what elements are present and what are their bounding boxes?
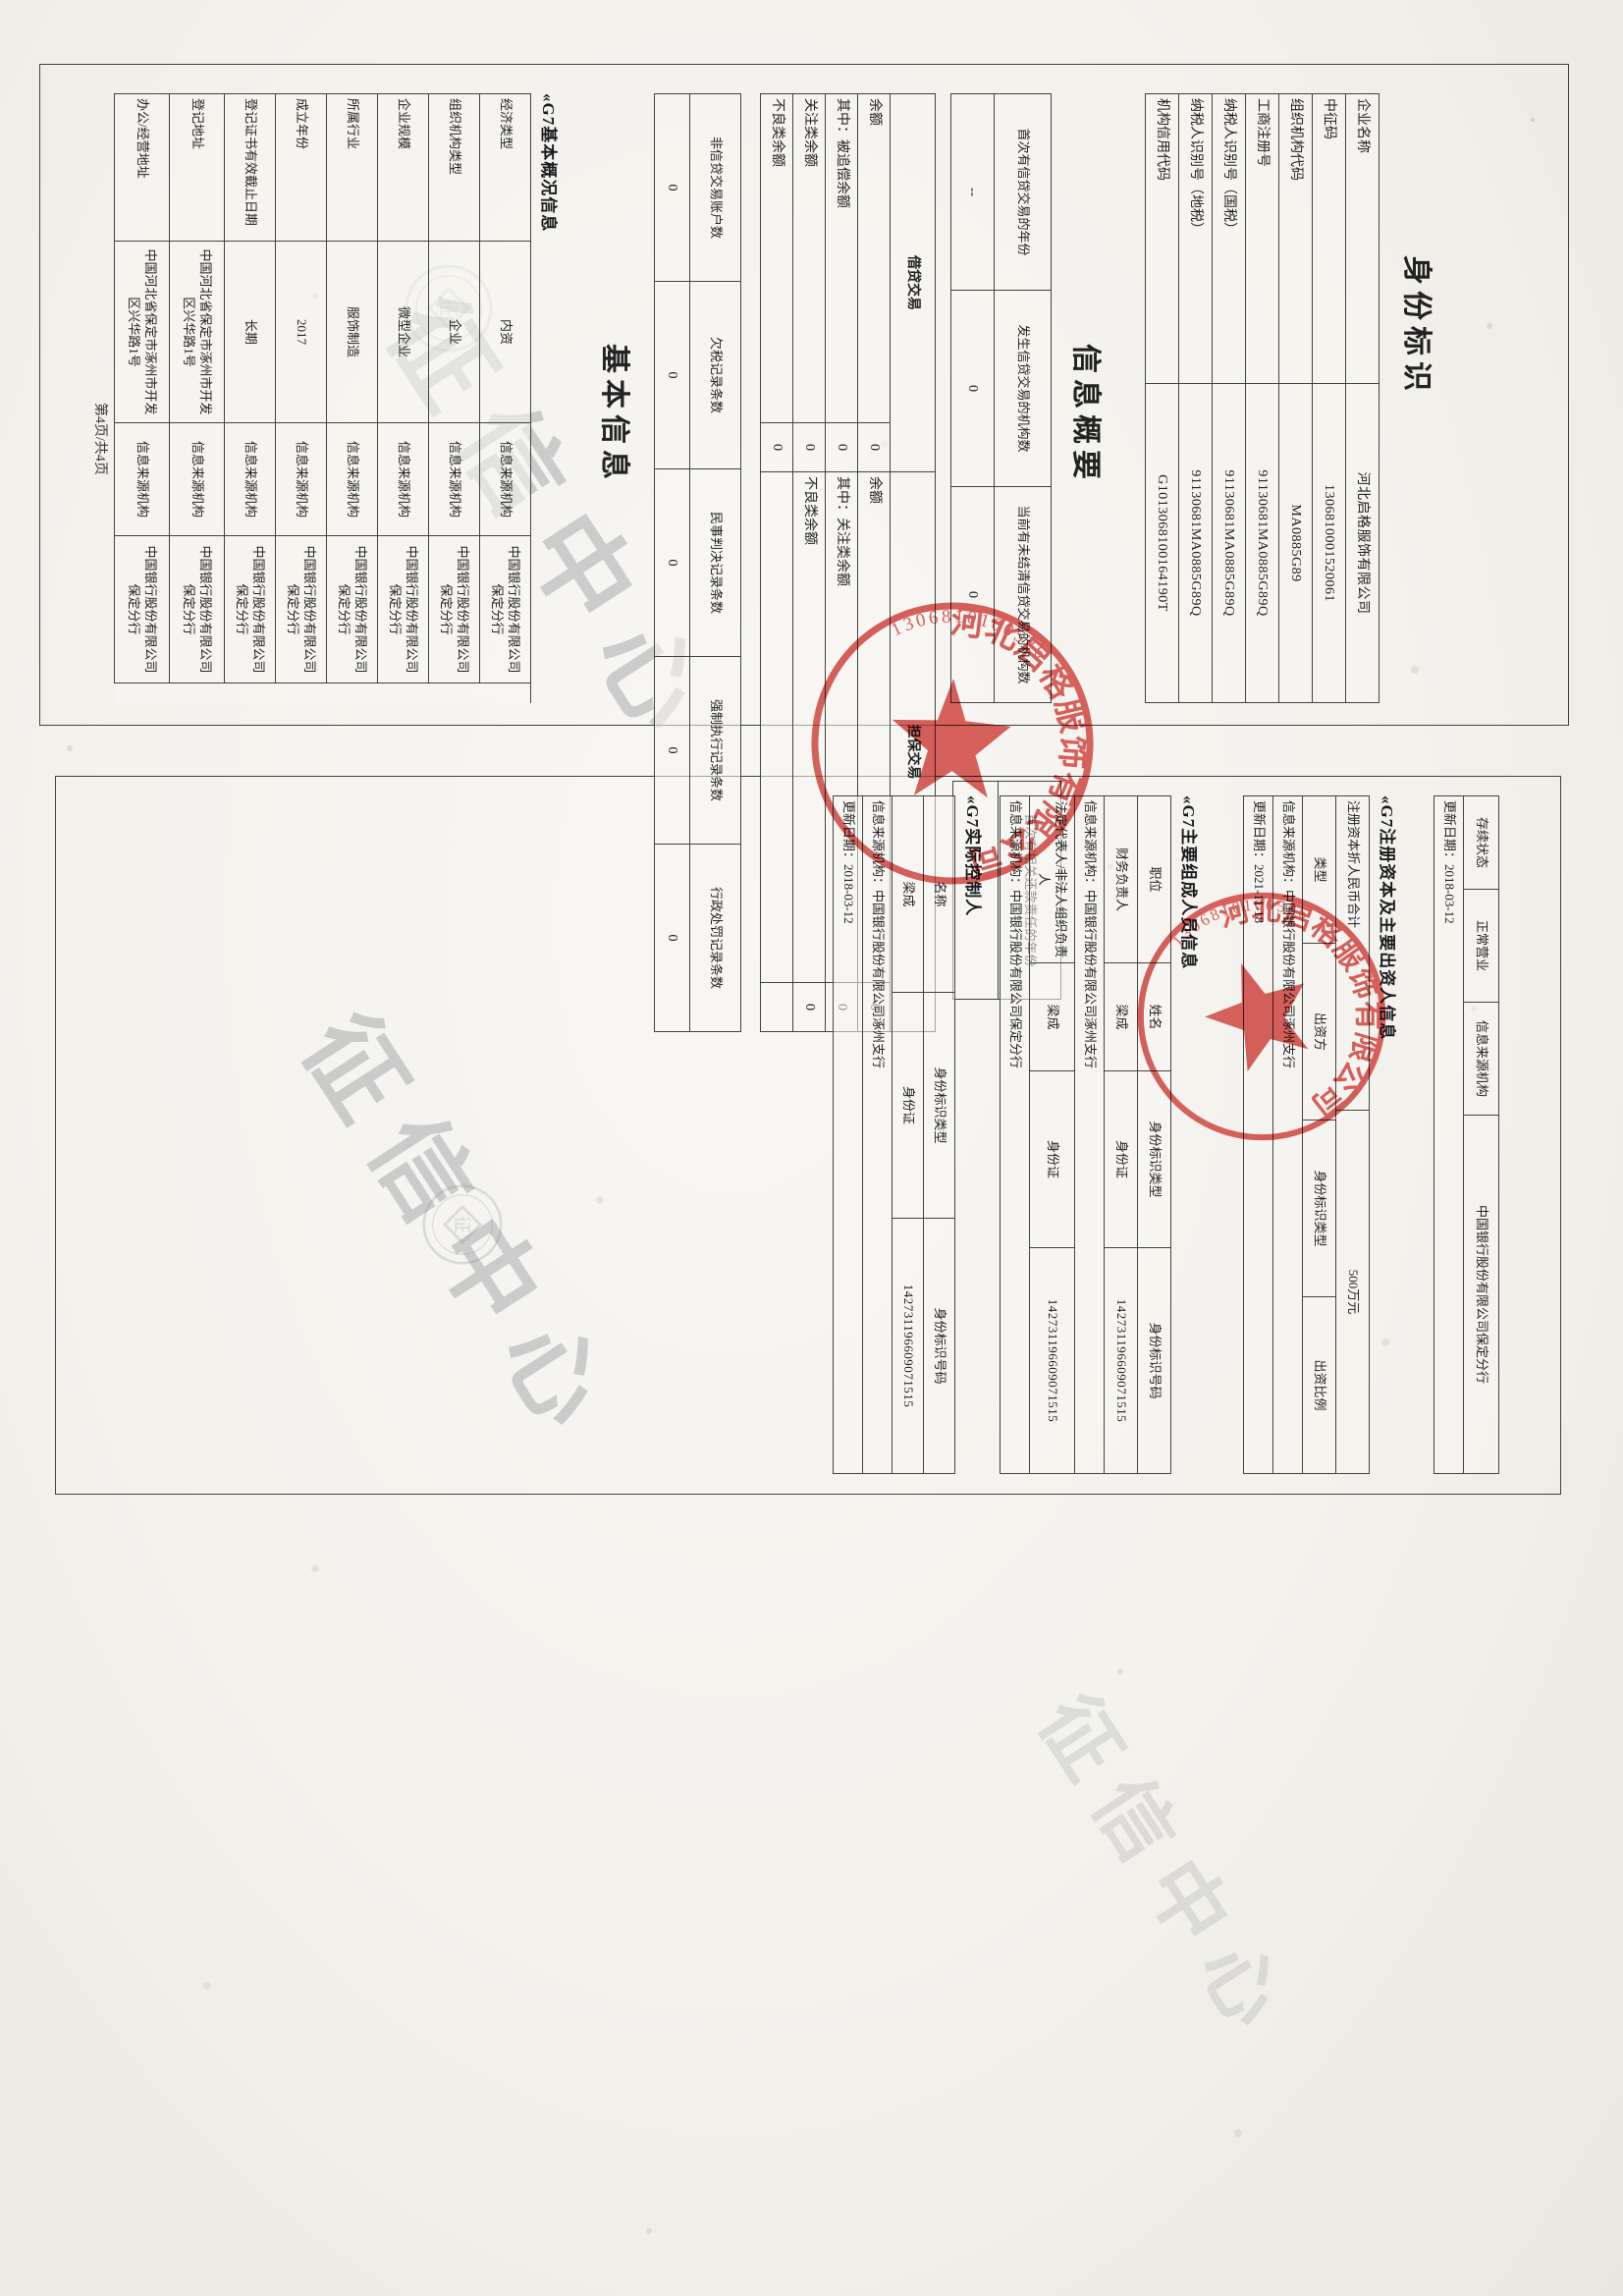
section-title-identity: 身份标识 bbox=[1398, 255, 1441, 397]
basic-source-org: 中国银行股份有限公司保定分行 bbox=[326, 536, 377, 683]
loan-group-header: 借贷交易 bbox=[890, 94, 935, 472]
basic-source-label: 信息来源机构 bbox=[428, 423, 479, 536]
basic-label: 企业规模 bbox=[377, 94, 428, 242]
noncredit-header: 欠税记录条数 bbox=[689, 282, 740, 469]
status-table: 存续状态 正常营业 信息来源机构 中国银行股份有限公司保定分行 更新日期：201… bbox=[1434, 795, 1499, 1474]
section-title-summary: 信息概要 bbox=[1067, 344, 1110, 485]
basic-value: 企业 bbox=[428, 242, 479, 423]
basic-source-label: 信息来源机构 bbox=[169, 423, 224, 536]
noncredit-header: 非信贷交易账户数 bbox=[689, 94, 740, 282]
basic-value: 服饰制造 bbox=[326, 242, 377, 423]
noncredit-table: 非信贷交易账户数 欠税记录条数 民事判决记录条数 强制执行记录条数 行政处罚记录… bbox=[654, 93, 741, 1032]
member-header: 身份标识号码 bbox=[1137, 1248, 1170, 1474]
id-value: 91130681MA0885G89Q bbox=[1178, 384, 1212, 703]
watermark-text: 征信中心 bbox=[1017, 1669, 1326, 2061]
controller-id-type: 身份证 bbox=[892, 993, 923, 1219]
subsection-basic-overview: «G7基本概况信息 bbox=[538, 93, 563, 232]
basic-source-org: 中国银行股份有限公司保定分行 bbox=[224, 536, 275, 683]
balance-label: 不良类余额 bbox=[760, 94, 792, 423]
member-id-no: 142731196609071515 bbox=[1104, 1248, 1137, 1474]
basic-label: 成立年份 bbox=[275, 94, 326, 242]
id-value: MA0885G89 bbox=[1278, 384, 1312, 703]
status-source-label: 信息来源机构 bbox=[1463, 1003, 1498, 1116]
noncredit-header: 强制执行记录条数 bbox=[689, 657, 740, 845]
basic-source-label: 信息来源机构 bbox=[326, 423, 377, 536]
basic-label: 所属行业 bbox=[326, 94, 377, 242]
id-label: 纳税人识别号（地税） bbox=[1178, 94, 1212, 384]
id-label: 组织机构代码 bbox=[1278, 94, 1312, 384]
capital-value: 500万元 bbox=[1335, 1111, 1369, 1474]
basic-source-label: 信息来源机构 bbox=[275, 423, 326, 536]
basic-label: 办公/经营地址 bbox=[114, 94, 169, 242]
basic-source-org: 中国银行股份有限公司保定分行 bbox=[169, 536, 224, 683]
basic-label: 登记地址 bbox=[169, 94, 224, 242]
basic-source-label: 信息来源机构 bbox=[114, 423, 169, 536]
identity-table: 企业名称河北启格服饰有限公司 中征码1306810001520061 组织机构代… bbox=[1145, 93, 1380, 703]
balance-label: 关注类余额 bbox=[792, 94, 825, 423]
controller-header: 身份标识类型 bbox=[923, 993, 954, 1219]
page-footer: 第4页/共4页 bbox=[91, 403, 111, 475]
status-value: 正常营业 bbox=[1463, 890, 1498, 1003]
empty-cell bbox=[760, 472, 792, 983]
basic-value: 中国河北省保定市涿州市开发区兴华路1号 bbox=[114, 242, 169, 423]
basic-label: 经济类型 bbox=[479, 94, 530, 242]
basic-value: 中国河北省保定市涿州市开发区兴华路1号 bbox=[169, 242, 224, 423]
basic-source-org: 中国银行股份有限公司保定分行 bbox=[479, 536, 530, 683]
basic-value: 长期 bbox=[224, 242, 275, 423]
member-name: 梁成 bbox=[1029, 963, 1074, 1071]
balance-value: 0 bbox=[857, 423, 890, 472]
member-source: 信息来源机构：中国银行股份有限公司保定分行 bbox=[1000, 796, 1029, 1474]
svg-text:征: 征 bbox=[453, 1216, 472, 1233]
investor-header: 身份标识类型 bbox=[1302, 1121, 1335, 1297]
basic-source-org: 中国银行股份有限公司保定分行 bbox=[275, 536, 326, 683]
balance-value: 0 bbox=[760, 423, 792, 472]
member-id-type: 身份证 bbox=[1029, 1071, 1074, 1248]
scan-noise bbox=[1531, 118, 1535, 122]
basic-value: 2017 bbox=[275, 242, 326, 423]
noncredit-value: 0 bbox=[654, 469, 689, 657]
controller-header: 身份标识号码 bbox=[923, 1219, 954, 1474]
status-label: 存续状态 bbox=[1463, 796, 1498, 890]
summary-header: 首次有信贷交易的年份 bbox=[994, 94, 1051, 291]
noncredit-header: 行政处罚记录条数 bbox=[689, 845, 740, 1032]
member-source: 信息来源机构：中国银行股份有限公司涿州支行 bbox=[1074, 796, 1104, 1474]
basic-label: 登记证书有效截止日期 bbox=[224, 94, 275, 242]
noncredit-value: 0 bbox=[654, 657, 689, 845]
status-updated: 更新日期：2018-03-12 bbox=[1434, 796, 1463, 1474]
basic-label: 组织机构类型 bbox=[428, 94, 479, 242]
balance-value: 0 bbox=[825, 423, 857, 472]
basic-source-label: 信息来源机构 bbox=[479, 423, 530, 536]
balance-value: 0 bbox=[792, 423, 825, 472]
pboc-watermark-logo: 征 bbox=[421, 1183, 504, 1266]
id-value: 91130681MA0885G89Q bbox=[1212, 384, 1245, 703]
controller-id-no: 142731196609071515 bbox=[892, 1219, 923, 1474]
basic-value: 内资 bbox=[479, 242, 530, 423]
basic-source-org: 中国银行股份有限公司保定分行 bbox=[114, 536, 169, 683]
section-title-basic: 基本信息 bbox=[596, 344, 639, 485]
basic-overview-table: 经济类型 内资 信息来源机构 中国银行股份有限公司保定分行 组织机构类型 企业 … bbox=[114, 93, 531, 703]
id-label: 纳税人识别号（国税） bbox=[1212, 94, 1245, 384]
summary-value: -- bbox=[950, 94, 994, 291]
id-value: G1013068100164190T bbox=[1145, 384, 1178, 703]
basic-source-org: 中国银行股份有限公司保定分行 bbox=[428, 536, 479, 683]
rotated-document-sheet: 征 征 征信中心 征信中心 征信中心 身份标识 企业名称河北启格服饰有限公司 中… bbox=[0, 0, 1623, 2296]
status-source-org: 中国银行股份有限公司保定分行 bbox=[1463, 1116, 1498, 1474]
basic-source-org: 中国银行股份有限公司保定分行 bbox=[377, 536, 428, 683]
noncredit-value: 0 bbox=[654, 282, 689, 469]
basic-source-label: 信息来源机构 bbox=[224, 423, 275, 536]
noncredit-value: 0 bbox=[654, 845, 689, 1032]
id-label: 中征码 bbox=[1312, 94, 1345, 384]
noncredit-value: 0 bbox=[654, 94, 689, 282]
investor-header: 出资比例 bbox=[1302, 1297, 1335, 1474]
id-label: 企业名称 bbox=[1345, 94, 1379, 384]
noncredit-header: 民事判决记录条数 bbox=[689, 469, 740, 657]
member-id-no: 142731196609071515 bbox=[1029, 1248, 1074, 1474]
empty-cell bbox=[760, 983, 792, 1032]
id-value: 1306810001520061 bbox=[1312, 384, 1345, 703]
balance-label: 余额 bbox=[857, 94, 890, 423]
basic-source-label: 信息来源机构 bbox=[377, 423, 428, 536]
balance-value: 0 bbox=[792, 983, 825, 1032]
id-label: 机构信用代码 bbox=[1145, 94, 1178, 384]
id-label: 工商注册号 bbox=[1245, 94, 1278, 384]
basic-value: 微型企业 bbox=[377, 242, 428, 423]
summary-header: 发生信贷交易的机构数 bbox=[994, 291, 1051, 487]
members-table: 职位 姓名 身份标识类型 身份标识号码 财务负责人 梁成 身份证 1427311… bbox=[1000, 795, 1171, 1474]
summary-value: 0 bbox=[950, 291, 994, 487]
scanned-credit-report-page: 征 征 征信中心 征信中心 征信中心 身份标识 企业名称河北启格服饰有限公司 中… bbox=[0, 0, 1623, 2296]
member-id-type: 身份证 bbox=[1104, 1071, 1137, 1248]
id-value: 河北启格服饰有限公司 bbox=[1345, 384, 1379, 703]
id-value: 91130681MA0885G89Q bbox=[1245, 384, 1278, 703]
balance-label: 其中：被追偿余额 bbox=[825, 94, 857, 423]
